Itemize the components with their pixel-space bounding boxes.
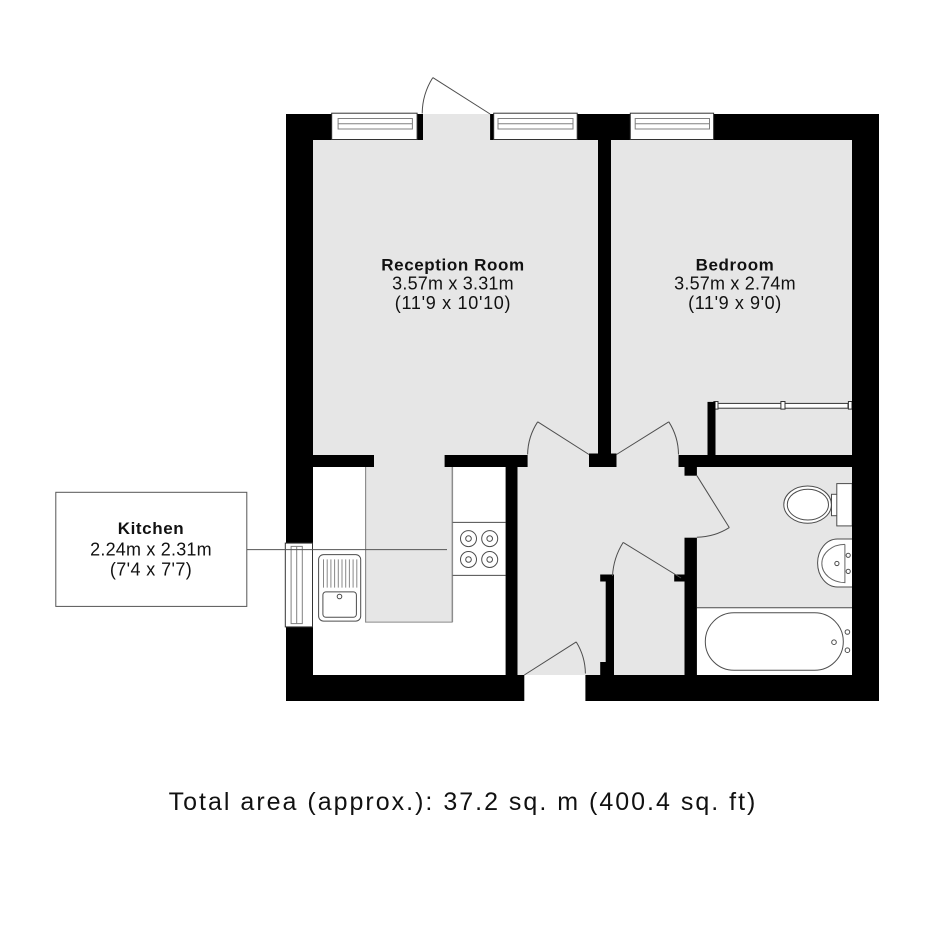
svg-text:Kitchen: Kitchen [118,519,185,538]
svg-text:3.57m x 3.31m: 3.57m x 3.31m [392,273,514,293]
svg-text:(11'9 x 10'10): (11'9 x 10'10) [395,293,511,313]
svg-text:Reception Room: Reception Room [381,255,524,274]
svg-text:Total area (approx.): 37.2 sq.: Total area (approx.): 37.2 sq. m (400.4 … [169,788,758,816]
svg-text:2.24m x 2.31m: 2.24m x 2.31m [90,539,212,559]
svg-text:3.57m x 2.74m: 3.57m x 2.74m [674,273,796,293]
svg-text:Bedroom: Bedroom [696,255,775,274]
svg-text:(7'4 x 7'7): (7'4 x 7'7) [110,560,192,580]
svg-text:(11'9 x 9'0): (11'9 x 9'0) [688,293,782,313]
